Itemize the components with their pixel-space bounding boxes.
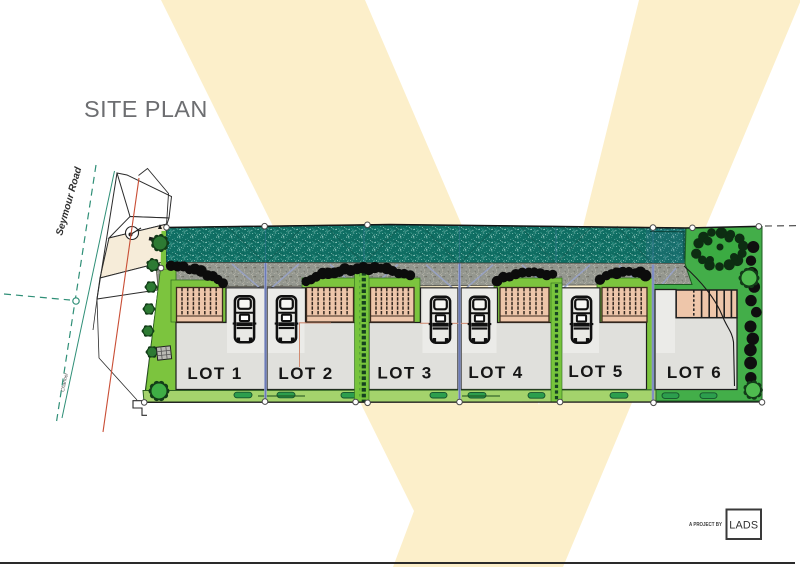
svg-text:LADS: LADS [729, 520, 758, 532]
svg-text:A PROJECT BY: A PROJECT BY [689, 522, 722, 528]
svg-text:LOT 3: LOT 3 [377, 364, 432, 383]
svg-text:LOT 6: LOT 6 [667, 363, 722, 382]
svg-text:LOT 2: LOT 2 [278, 364, 333, 383]
svg-text:LOT 4: LOT 4 [468, 363, 523, 382]
svg-text:LOT 5: LOT 5 [568, 362, 623, 381]
svg-text:SITE PLAN: SITE PLAN [84, 96, 208, 122]
svg-text:LOT 1: LOT 1 [187, 364, 242, 383]
